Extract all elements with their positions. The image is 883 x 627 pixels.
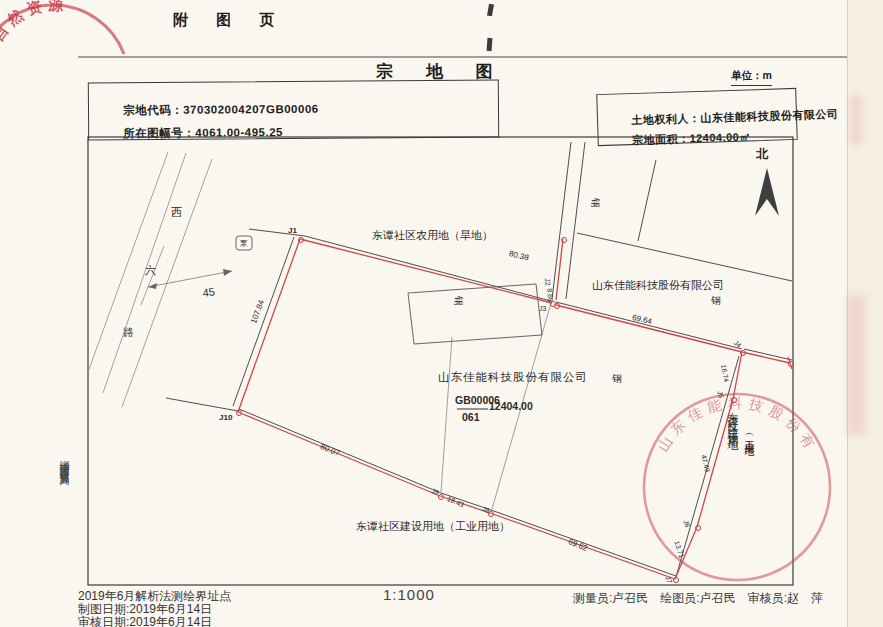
neighbor-company-label: 山东佳能科技股份有限公司 xyxy=(592,280,724,291)
road-char-lu: 路 xyxy=(123,327,134,338)
edge-length-18-43: 18.43 xyxy=(446,495,465,509)
edge-length-69-62: 69.62 xyxy=(567,538,589,553)
edge-length-47-49: 47.49 xyxy=(700,454,711,473)
pump-symbol: 泵 xyxy=(240,240,248,248)
edge-length-80-07: 80.07 xyxy=(319,443,341,458)
staple-mark xyxy=(487,38,493,51)
parcel-code-denominator: 061 xyxy=(462,412,480,423)
building-steel-1: 钢 xyxy=(590,198,600,208)
point-j1: J1 xyxy=(288,227,297,235)
building-steel-3: 钢 xyxy=(453,296,463,306)
boundary-point-marker xyxy=(740,350,746,356)
boundary-point-marker xyxy=(731,397,737,403)
stamp-bleed-mark xyxy=(846,295,866,435)
neighbor-top-label: 东谭社区农用地（旱地） xyxy=(372,230,493,241)
boundary-point-marker xyxy=(236,410,242,416)
boundary-point-marker xyxy=(488,511,494,517)
edge-length-107-84: 107.84 xyxy=(250,299,266,325)
point-j5: J5 xyxy=(716,390,725,399)
east-use-label-col1: 东谭社区建设用地 xyxy=(727,403,738,435)
stamp-bleed-mark xyxy=(850,95,862,145)
parcel-area-value: 12404.00 xyxy=(489,401,533,412)
road-char-west: 西 xyxy=(171,207,182,218)
boundary-point-marker xyxy=(554,303,560,309)
road-char-six: 六 xyxy=(145,265,156,276)
boundary-point-marker xyxy=(788,361,794,367)
boundary-point-marker xyxy=(673,577,679,583)
building-steel-2: 钢 xyxy=(711,296,721,306)
neighbor-bottom-label: 东谭社区建设用地（工业用地） xyxy=(356,521,510,532)
point-j4: J4 xyxy=(733,339,743,349)
boundary-point-marker xyxy=(561,237,567,243)
point-j2: J2 xyxy=(544,278,552,286)
point-j6: J6 xyxy=(682,519,691,528)
boundary-point-marker xyxy=(695,525,701,531)
boundary-point-marker xyxy=(438,494,444,500)
edge-length-80-38: 80.38 xyxy=(508,250,529,263)
building-steel-4: 钢 xyxy=(612,374,622,384)
parcel-owner-label: 山东佳能科技股份有限公司 xyxy=(438,372,588,384)
boundary-point-marker xyxy=(298,237,304,243)
edge-length-13-71: 13.71 xyxy=(673,540,685,559)
edge-length-16-74: 16.74 xyxy=(720,364,730,382)
road-width-45: 45 xyxy=(202,286,216,299)
point-j10: J10 xyxy=(219,414,232,422)
point-j3: J3 xyxy=(539,305,546,312)
edge-length-69-64: 69.64 xyxy=(631,314,652,326)
east-use-label-col2: （工业用地） xyxy=(744,430,754,442)
scanned-parcel-map-page: 附 图 页 宗 地 图 单位：m 北 1:1000 2019年6月解析法测绘界址… xyxy=(0,0,883,627)
map-labels: 东谭社区农用地（旱地）80.38J1泵西六路45107.84J1080.07J9… xyxy=(0,0,883,627)
